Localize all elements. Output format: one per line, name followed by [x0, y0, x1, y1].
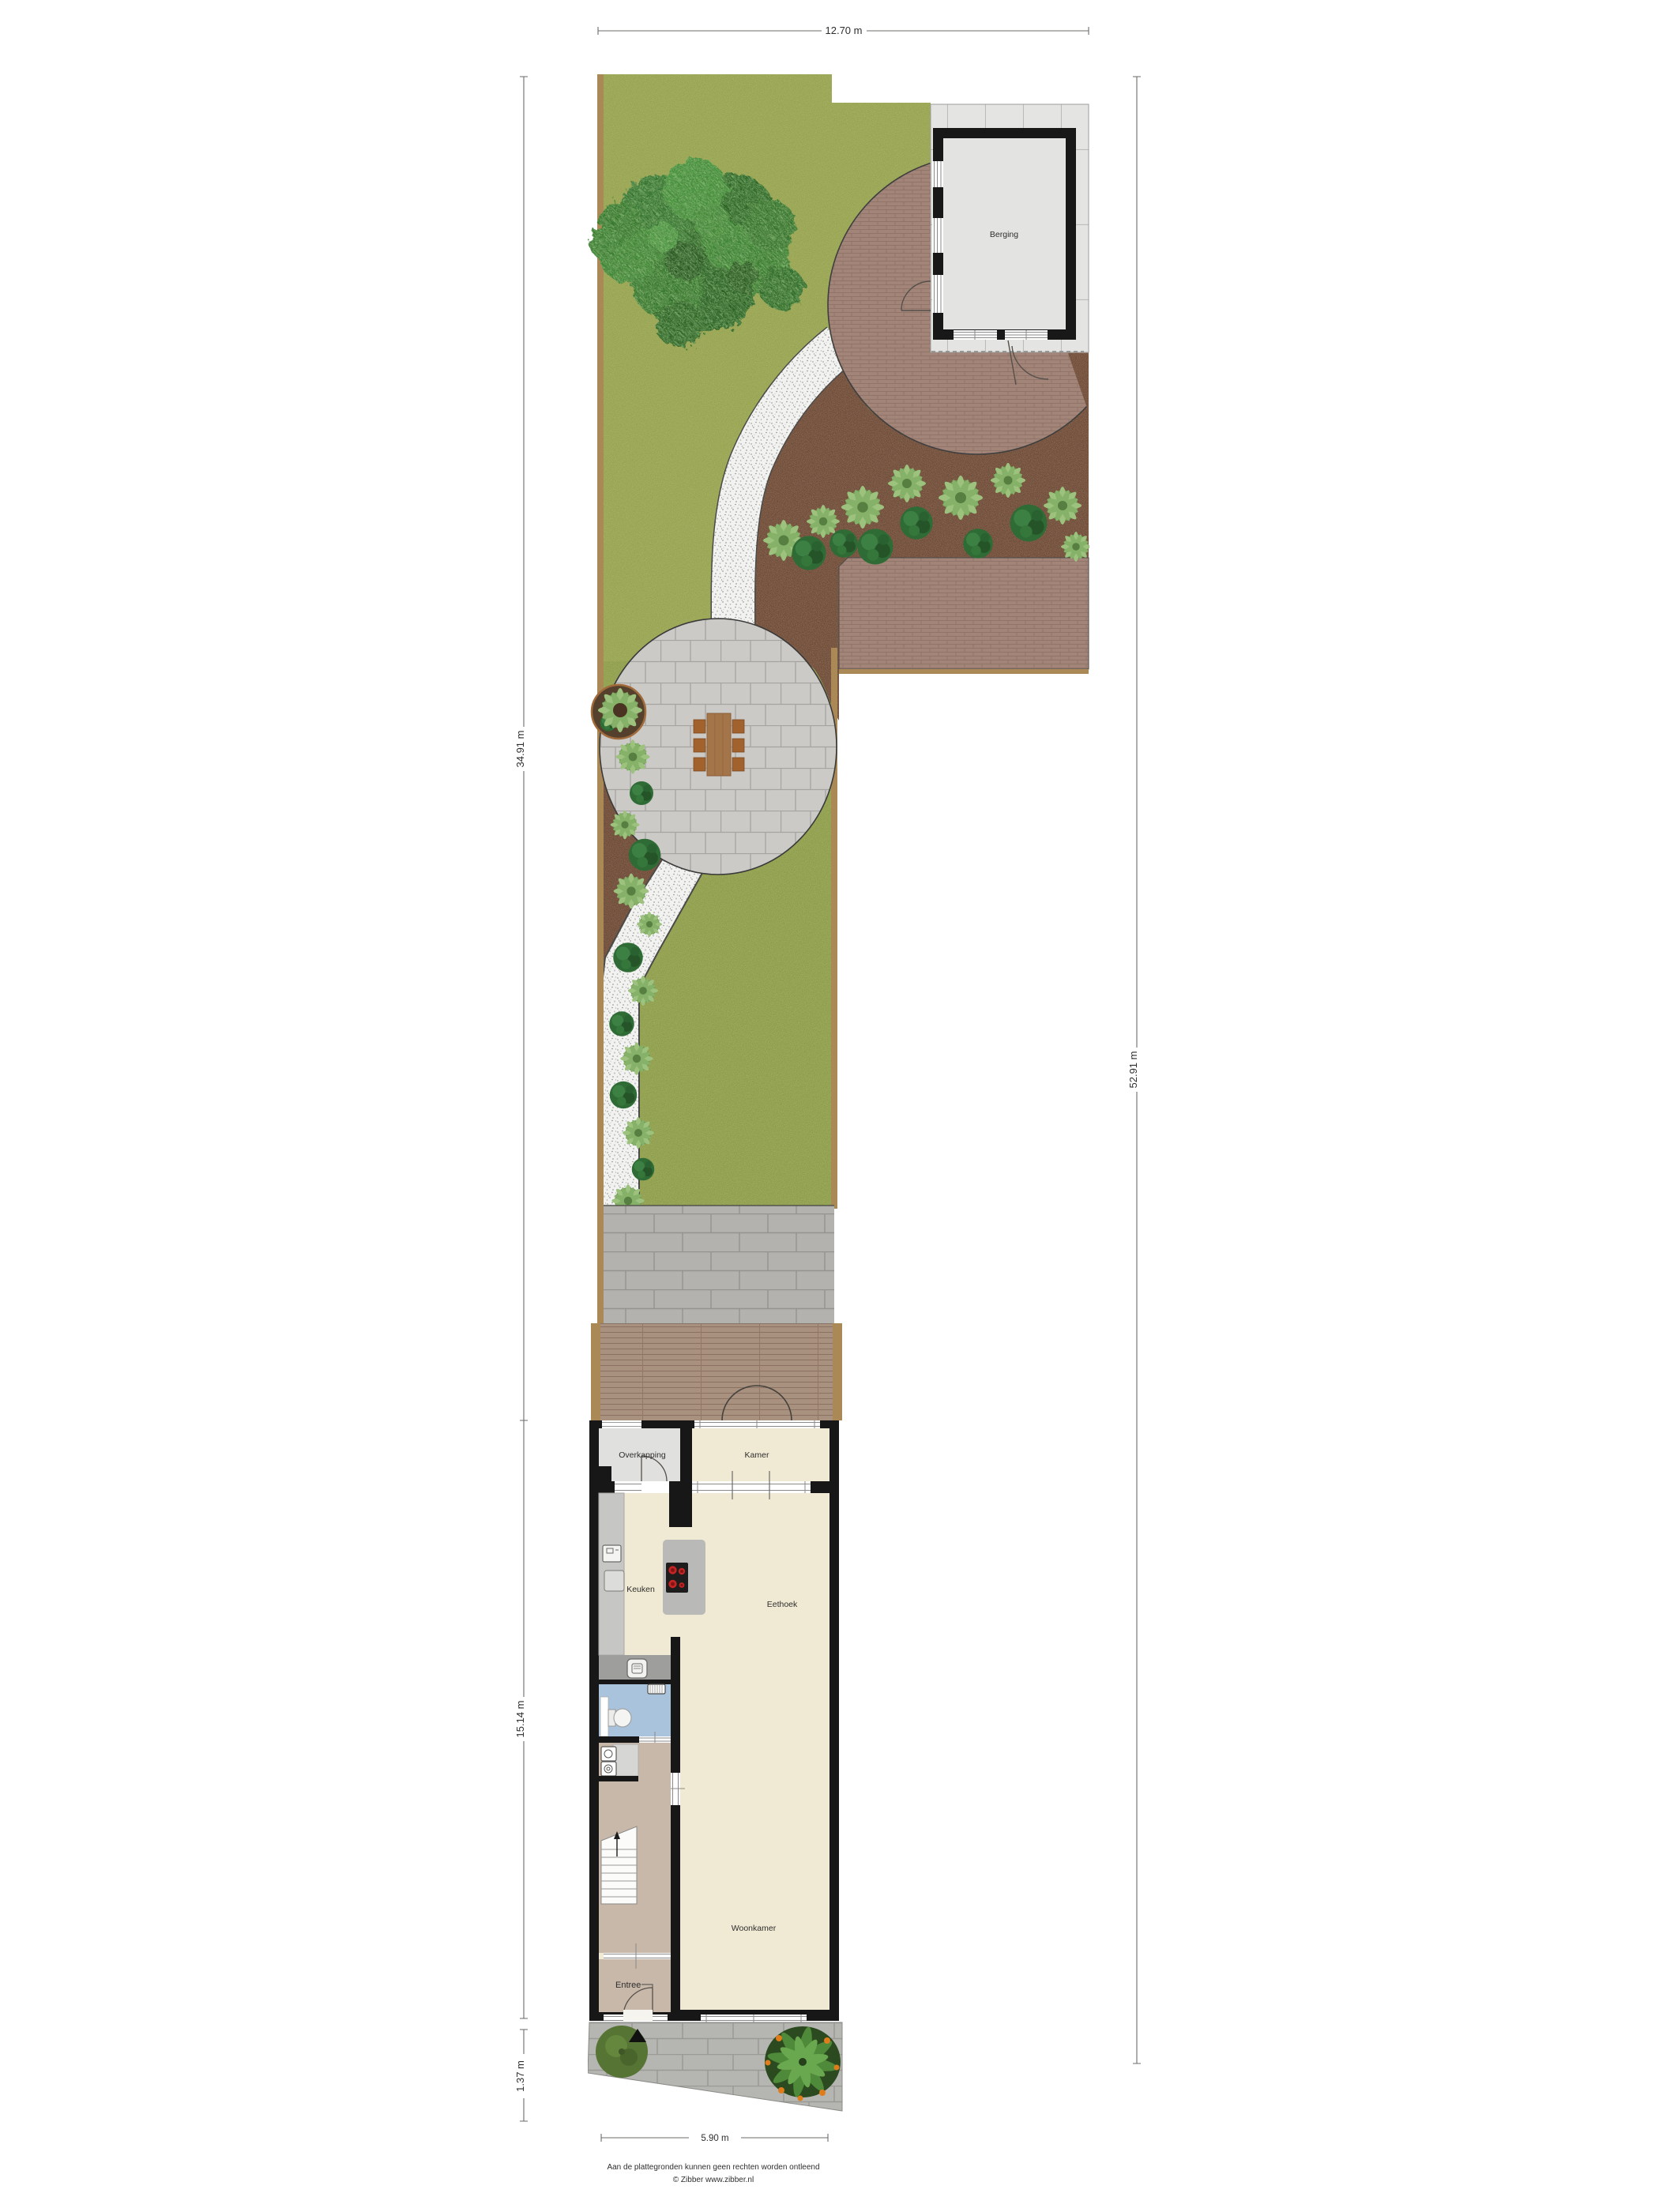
svg-text:1.37 m: 1.37 m — [514, 2060, 526, 2092]
svg-text:34.91 m: 34.91 m — [514, 731, 526, 768]
svg-text:Eethoek: Eethoek — [767, 1600, 798, 1609]
svg-text:Entree: Entree — [615, 1981, 641, 1990]
svg-text:15.14 m: 15.14 m — [514, 1701, 526, 1738]
svg-text:Overkapping: Overkapping — [619, 1450, 666, 1460]
svg-text:12.70 m: 12.70 m — [826, 24, 863, 36]
svg-text:52.91 m: 52.91 m — [1127, 1051, 1139, 1089]
svg-text:Woonkamer: Woonkamer — [732, 1924, 777, 1933]
svg-text:Aan de plattegronden kunnen ge: Aan de plattegronden kunnen geen rechten… — [607, 2163, 819, 2172]
svg-text:Kamer: Kamer — [745, 1450, 769, 1460]
svg-text:Berging: Berging — [990, 230, 1018, 239]
svg-text:5.90 m: 5.90 m — [701, 2134, 728, 2143]
svg-text:© Zibber www.zibber.nl: © Zibber www.zibber.nl — [673, 2176, 754, 2184]
svg-text:Keuken: Keuken — [626, 1585, 655, 1594]
